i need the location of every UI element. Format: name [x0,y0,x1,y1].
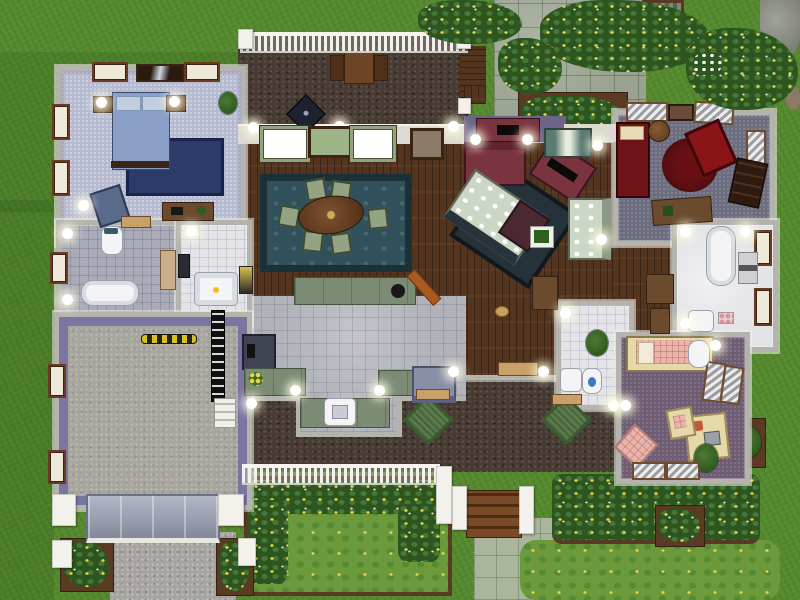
parking-strip [141,334,197,344]
bathroom-window [50,252,68,284]
porch-lamp-4 [538,366,549,377]
shower-tub[interactable] [194,272,238,306]
picnic-table-top [344,52,374,84]
red-wall-picture [668,104,694,121]
kitchen-stove[interactable] [242,334,276,370]
master-window-left2 [52,160,70,196]
highchair[interactable] [239,266,253,294]
right-bath-art [738,252,758,284]
garage-window-1 [48,364,66,398]
garage-post-left [52,494,76,526]
step-newel-left [452,486,467,530]
table-centerpiece [326,210,335,219]
rubber-duck [213,287,219,293]
powder-sink[interactable] [560,368,582,392]
house-yard-scene [0,0,800,600]
clawfoot-tub-main[interactable] [81,280,139,306]
pink-lamp-2 [710,340,721,351]
dining-window-plain [308,126,354,158]
bassinet[interactable] [688,340,710,368]
porch-lamp-2 [374,385,385,396]
right-bath-lamp-2 [740,226,751,237]
kitchen-island[interactable] [294,277,416,305]
master-mirror [136,64,184,82]
nightstand-lamp-left [96,97,107,108]
driveway-post-right [238,538,256,566]
dining-chair-6[interactable] [330,232,353,256]
hall-porch-door[interactable] [552,394,582,405]
master-double-bed[interactable] [112,92,170,170]
framed-plant[interactable] [530,226,554,248]
desk-item-plant [197,206,206,215]
master-floor-lamp [78,200,89,211]
picnic-bench-left [330,55,344,81]
front-door[interactable] [498,362,538,376]
bed-pillows [116,96,141,111]
powder-toilet[interactable] [582,368,602,394]
porch-lamp-6 [608,400,619,411]
red-desk-item [663,206,674,217]
porch-lamp-1 [290,385,301,396]
hall-dresser-2[interactable] [646,274,674,304]
red-bed-pillow [620,126,644,140]
counter-flowers [249,372,263,386]
master-window-left1 [52,104,70,140]
corner-planter-bush [658,508,700,542]
shrub-top-1 [540,0,710,72]
bathroom-vanity[interactable] [160,250,176,290]
garage-ladder[interactable] [211,310,225,402]
toilet-tank [104,228,118,234]
flower-meadow [520,540,780,600]
porch-railing [242,464,440,485]
powder-toilet-seat [588,377,596,387]
island-sink [391,284,405,298]
picnic-table[interactable] [330,52,386,82]
driveway-post-left [52,540,72,568]
deck-post-left [238,29,253,49]
master-window-top2 [184,62,220,82]
front-steps[interactable] [466,490,522,538]
bath-lamp-2 [62,294,73,305]
pink-window-2 [666,462,700,480]
toilet-main[interactable] [101,226,123,255]
fireplace-opening [497,125,519,135]
bath-lamp-1 [62,228,73,239]
master-desk[interactable] [162,202,214,221]
framed-plant-leaves [534,230,549,243]
bathroom-door[interactable] [121,216,151,228]
garage-side-steps[interactable] [214,398,236,428]
garage-door[interactable] [86,494,220,543]
living-loveseat-floral[interactable] [568,198,611,260]
stove-cooktop [247,344,255,358]
bumpout-sink[interactable] [324,398,356,426]
grill-knob [302,110,309,117]
bed-pillows-2 [142,96,167,111]
powder-lamp [560,308,571,319]
hall-dresser-1[interactable] [532,276,558,310]
pink-window-1 [632,462,666,480]
shrub-over-deck [418,0,522,44]
pink-bed-pillow [638,342,654,364]
tv-screen [547,158,579,183]
medicine-cabinet[interactable] [178,254,190,278]
clawfoot-tub-right[interactable] [706,226,736,286]
step-newel-right [519,486,534,534]
dining-chair-4[interactable] [367,207,389,230]
nightstand-lamp-right [169,96,180,107]
powder-plant[interactable] [586,330,608,356]
garage-window-2 [48,450,66,484]
master-plant[interactable] [219,92,237,114]
porch-lamp-5 [246,398,257,409]
dining-window-2 [350,126,396,162]
master-window-top1 [92,62,128,82]
deck-lamp-3 [448,121,459,132]
front-garden-left [244,476,452,596]
deck-step-post [458,98,471,114]
pink-desk-chair[interactable] [666,406,697,440]
pet-bowl[interactable] [495,306,509,317]
dining-window-1 [260,126,310,162]
perfume-tray[interactable] [718,312,734,324]
corner-planter[interactable] [655,505,705,547]
right-bath-window-2 [754,288,772,326]
white-flower-cluster [692,52,722,76]
right-bath-lamp-3 [680,318,691,329]
red-window-1 [626,102,668,122]
porch-lamp-3 [448,366,459,377]
right-bath-lamp-1 [680,226,691,237]
grass-shade-left [0,200,54,600]
right-bath-sink[interactable] [688,310,714,332]
red-desk[interactable] [651,196,713,226]
red-side-table[interactable] [648,120,670,142]
red-single-bed[interactable] [616,122,650,198]
deck-lamp-1 [248,122,259,133]
living-lamp-1 [470,134,481,145]
living-lamp-2 [522,134,533,145]
living-lamp-3 [592,140,603,151]
hall-dresser-3[interactable] [650,308,670,334]
shower-lamp [186,226,197,237]
bed-footboard [111,161,169,168]
chair-cushion [673,414,687,429]
porch-post-big [436,466,452,524]
sink-basin [332,405,348,419]
kitchen-porch-door[interactable] [416,389,450,400]
picnic-bench-right [374,55,388,81]
desk-item-dark [171,207,183,215]
dining-wall-picture [410,128,444,160]
pink-lamp-1 [620,400,631,411]
garage-post-right [218,494,244,526]
living-lamp-4 [596,234,607,245]
living-curtain-window [544,128,592,158]
garden-bush-right [398,504,440,562]
